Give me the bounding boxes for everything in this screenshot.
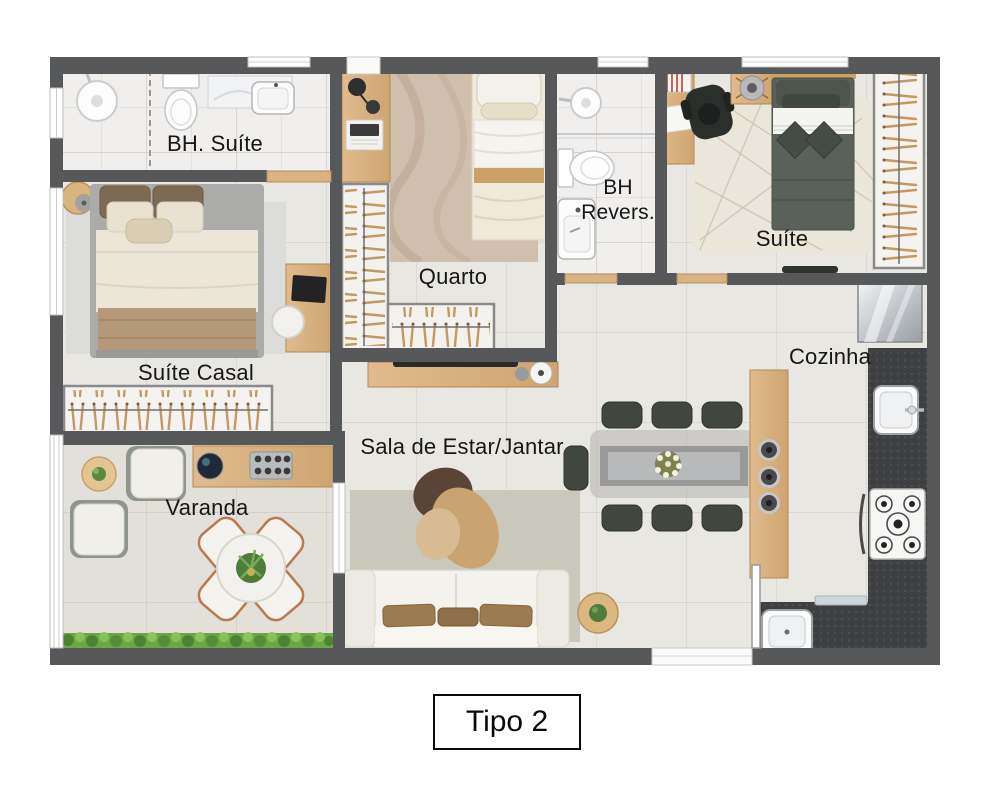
toilet <box>163 74 199 130</box>
door-bh-suite <box>267 171 331 182</box>
window <box>248 57 310 67</box>
floor-plan: BH. Suíte Quarto BH Revers. Suíte Suíte … <box>0 0 1000 793</box>
wardrobe-suite <box>874 70 924 268</box>
room-label-bh-revers: BH Revers. <box>581 175 655 225</box>
side-table <box>578 593 618 633</box>
stove <box>861 489 926 559</box>
kitchen-sink <box>874 386 924 434</box>
double-bed <box>90 184 264 358</box>
window <box>598 57 648 67</box>
sideboard <box>193 446 333 487</box>
fridge <box>858 282 922 342</box>
quarto-desk <box>342 70 390 182</box>
floor-plan-page: BH. Suíte Quarto BH Revers. Suíte Suíte … <box>0 0 1000 793</box>
sofa <box>343 570 569 647</box>
bar-stool <box>758 492 780 514</box>
room-label-sala: Sala de Estar/Jantar <box>360 434 563 460</box>
plan-title-box: Tipo 2 <box>433 694 581 750</box>
armchair <box>126 446 186 501</box>
armchair <box>70 500 128 558</box>
door-suite <box>677 274 727 283</box>
window <box>742 57 848 67</box>
room-label-cozinha: Cozinha <box>789 344 871 370</box>
suite-nightstand <box>731 72 773 104</box>
tv-console <box>368 359 558 387</box>
room-label-suite-casal: Suíte Casal <box>138 360 254 386</box>
window <box>50 88 63 138</box>
dish-rack <box>815 596 867 605</box>
plant-table <box>82 457 116 491</box>
glass-railing <box>50 435 63 648</box>
service-partition <box>752 565 760 648</box>
laptop <box>350 124 379 136</box>
nightstand <box>62 182 94 214</box>
window <box>347 57 380 74</box>
window <box>50 188 63 315</box>
glass-door <box>333 483 345 573</box>
single-bed <box>472 66 546 240</box>
room-label-bh-suite: BH. Suíte <box>167 131 263 157</box>
room-label-bh-revers-line1: BH <box>581 175 655 200</box>
room-label-suite: Suíte <box>756 226 808 252</box>
bar-stool <box>758 439 780 461</box>
vanity-sink <box>208 76 294 114</box>
plan-title: Tipo 2 <box>466 705 548 739</box>
room-label-varanda: Varanda <box>166 495 249 521</box>
room-label-bh-revers-line2: Revers. <box>581 200 655 225</box>
desk-chair <box>272 306 304 338</box>
door-bh-revers <box>565 274 617 283</box>
bedside-rug <box>66 202 92 354</box>
floor-plan-graphic <box>0 0 1000 793</box>
room-label-quarto: Quarto <box>419 264 487 290</box>
wall-bottom <box>50 648 940 665</box>
wardrobe-suite-casal <box>64 386 272 434</box>
wall-right <box>927 57 940 665</box>
kitchen-island <box>750 370 788 578</box>
foot-runner <box>782 266 838 273</box>
hedge <box>60 632 334 648</box>
entry-opening <box>652 648 752 665</box>
bar-stool <box>758 466 780 488</box>
